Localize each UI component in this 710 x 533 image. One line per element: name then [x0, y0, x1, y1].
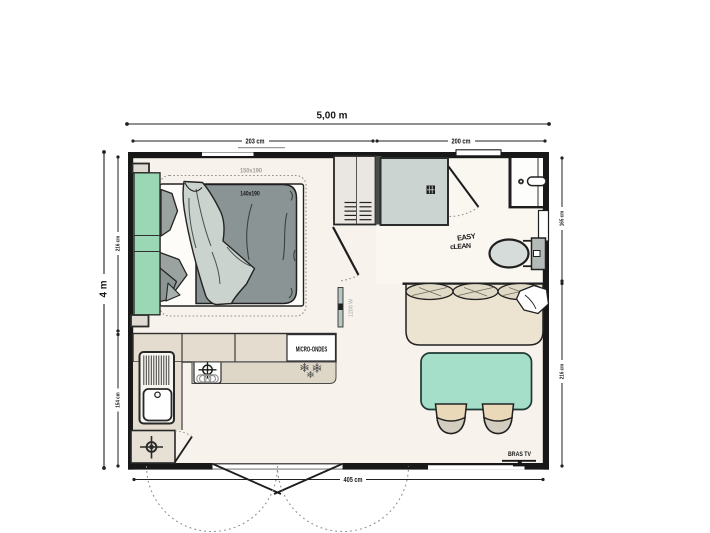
svg-text:405 cm: 405 cm: [344, 477, 363, 484]
svg-text:216 cm: 216 cm: [560, 364, 566, 380]
svg-text:140x190: 140x190: [240, 192, 260, 198]
svg-text:BRAS TV: BRAS TV: [508, 451, 531, 458]
svg-text:5,00 m: 5,00 m: [317, 110, 348, 122]
svg-text:MICRO-ONDES: MICRO-ONDES: [296, 345, 328, 354]
svg-text:165 cm: 165 cm: [560, 211, 566, 227]
svg-text:cLEAN: cLEAN: [450, 243, 471, 251]
svg-text:154 cm: 154 cm: [116, 392, 122, 408]
svg-text:216 cm: 216 cm: [116, 236, 122, 252]
svg-text:4 m: 4 m: [98, 281, 110, 298]
svg-text:1200 W: 1200 W: [349, 298, 355, 317]
svg-text:200 cm: 200 cm: [452, 139, 471, 146]
svg-text:203 cm: 203 cm: [246, 139, 265, 146]
svg-text:150x190: 150x190: [240, 168, 263, 175]
